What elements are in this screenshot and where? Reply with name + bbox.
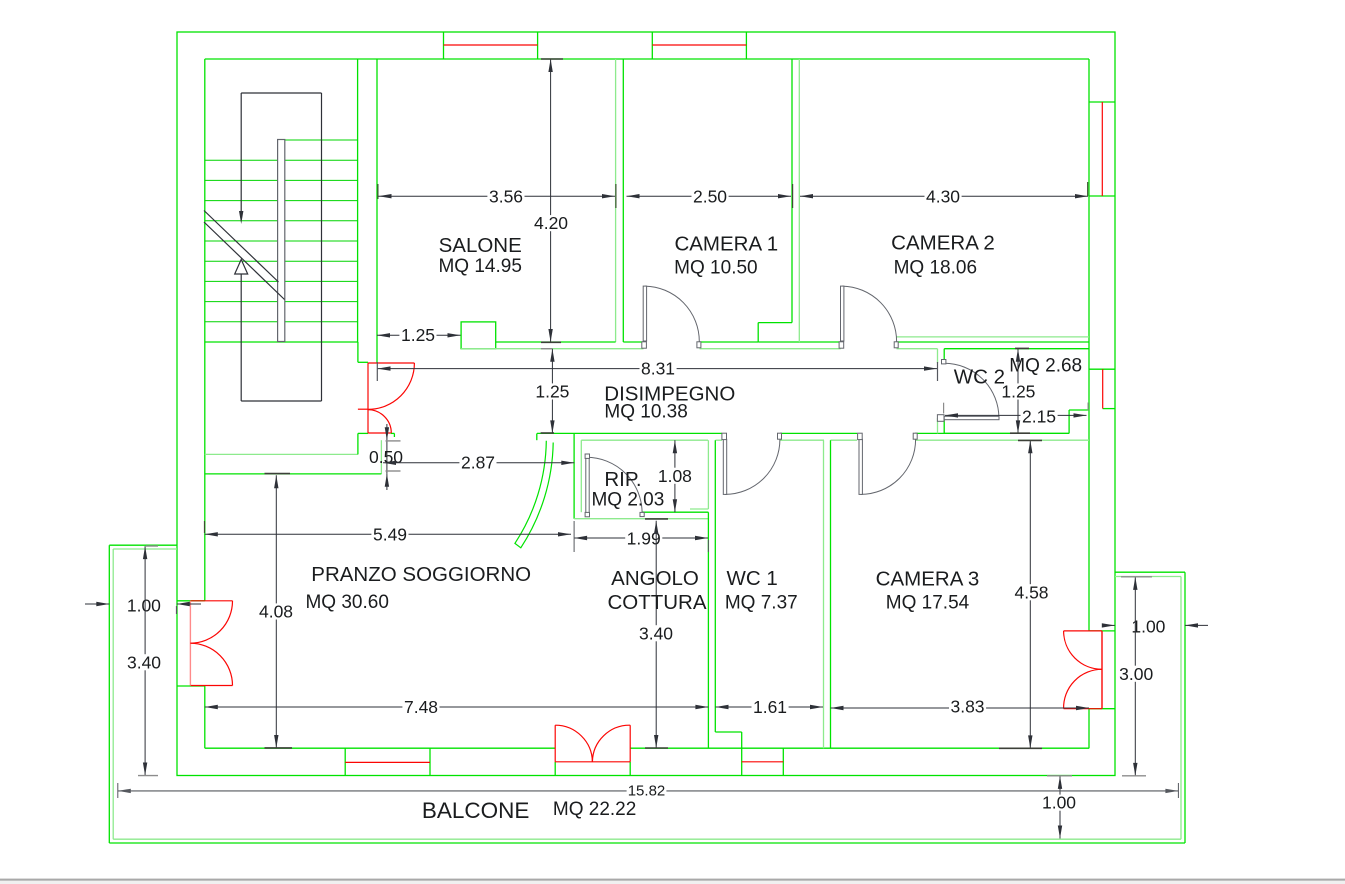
svg-text:4.30: 4.30 [926, 186, 960, 206]
svg-text:1.25: 1.25 [401, 325, 435, 345]
svg-text:MQ 22.22: MQ 22.22 [553, 799, 636, 820]
svg-text:PRANZO SOGGIORNO: PRANZO SOGGIORNO [311, 563, 531, 586]
svg-text:1.25: 1.25 [535, 382, 569, 402]
svg-text:3.00: 3.00 [1119, 664, 1153, 684]
svg-text:3.40: 3.40 [127, 652, 161, 672]
svg-text:MQ 2.68: MQ 2.68 [1009, 355, 1082, 376]
svg-text:4.08: 4.08 [259, 602, 293, 622]
svg-text:2.87: 2.87 [461, 453, 495, 473]
svg-text:MQ 17.54: MQ 17.54 [886, 593, 970, 614]
svg-text:MQ 10.38: MQ 10.38 [604, 402, 687, 423]
svg-text:4.58: 4.58 [1014, 582, 1048, 602]
svg-text:2.15: 2.15 [1022, 406, 1056, 426]
svg-text:2.50: 2.50 [693, 186, 727, 206]
svg-text:0.50: 0.50 [369, 447, 403, 467]
svg-text:7.48: 7.48 [404, 697, 438, 717]
svg-text:MQ 18.06: MQ 18.06 [894, 258, 977, 279]
svg-text:5.49: 5.49 [373, 524, 407, 544]
svg-text:3.40: 3.40 [639, 623, 673, 643]
svg-text:1.00: 1.00 [1131, 617, 1165, 637]
svg-text:3.56: 3.56 [489, 186, 523, 206]
svg-text:MQ 2.03: MQ 2.03 [591, 489, 664, 510]
svg-text:1.25: 1.25 [1001, 382, 1035, 402]
svg-text:BALCONE: BALCONE [422, 798, 530, 823]
svg-text:1.08: 1.08 [658, 466, 692, 486]
svg-text:MQ 14.95: MQ 14.95 [438, 256, 521, 277]
svg-text:COTTURA: COTTURA [607, 591, 706, 614]
svg-text:1.00: 1.00 [1042, 793, 1076, 813]
svg-text:3.83: 3.83 [950, 697, 984, 717]
svg-text:WC 2: WC 2 [954, 365, 1005, 388]
svg-text:MQ 30.60: MQ 30.60 [305, 592, 388, 613]
svg-text:1.61: 1.61 [753, 697, 787, 717]
svg-text:CAMERA 1: CAMERA 1 [674, 232, 778, 255]
svg-text:ANGOLO: ANGOLO [611, 567, 699, 590]
svg-text:8.31: 8.31 [641, 358, 675, 378]
svg-text:WC 1: WC 1 [726, 567, 777, 590]
svg-text:MQ 10.50: MQ 10.50 [674, 258, 757, 279]
svg-text:4.20: 4.20 [534, 213, 568, 233]
svg-text:CAMERA 2: CAMERA 2 [891, 231, 995, 254]
svg-text:1.00: 1.00 [127, 595, 161, 615]
svg-text:SALONE: SALONE [439, 234, 522, 257]
svg-text:RIP.: RIP. [604, 468, 641, 491]
svg-text:MQ 7.37: MQ 7.37 [725, 592, 798, 613]
svg-text:15.82: 15.82 [628, 782, 666, 799]
svg-text:CAMERA 3: CAMERA 3 [876, 567, 980, 590]
